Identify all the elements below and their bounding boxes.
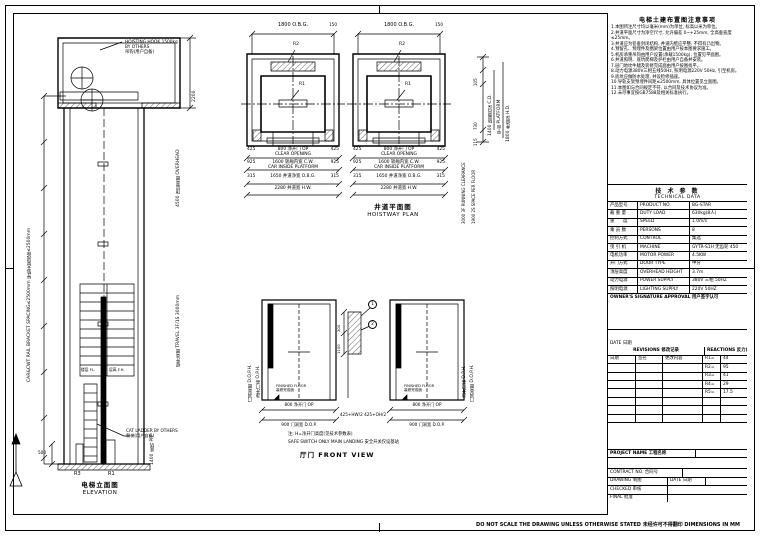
door-opening-height-label-right: 门洞高度 D.O.P.H. — [470, 310, 476, 402]
title-block: PROJECT NAME 工程名称 CONTRACT NO. 合同号 DRAWI… — [608, 450, 747, 515]
reaction-value: 95 — [721, 364, 747, 371]
op-row-cn: 800 净开门 OP — [284, 402, 313, 407]
tech-row: 照明电源LIGHTING SUPPLY220V 50HZ — [608, 286, 747, 294]
dim-425-left: 425 — [247, 148, 255, 153]
hook-note-line3: 吊钩(用户自备) — [125, 50, 154, 55]
revision-row: 日期 签名 更改内容 R1= 44 — [608, 356, 747, 364]
dim-425-right: 425 — [437, 148, 445, 153]
elevation-caption: 电梯立面图 ELEVATION — [48, 482, 152, 496]
contract-no-label: CONTRACT NO. 合同号 — [608, 469, 683, 476]
checked-row: CHECKED 审核 — [608, 486, 747, 494]
tech-row: 载 重 量DUTY LOAD630kg(8人) — [608, 210, 747, 218]
running-clearance-note: 3000 3F RUNNING CLEARANCE — [461, 142, 466, 224]
cad-drawing-page: DO NOT SCALE THE DRAWING UNLESS OTHERWIS… — [0, 0, 760, 537]
note-item: 8.动力电源380V三相五线50Hz, 照明电源220V 50Hz, 引至机房。 — [608, 69, 747, 75]
notes-section: 电梯土建布置图注意事项 1.本图所注尺寸均以毫米(mm)为单位, 标高以米为单位… — [608, 13, 747, 185]
tech-en: MACHINE — [638, 244, 690, 251]
hoisting-hook-note: HOISTING HOOK 1500kg BY OTHERS 吊钩(用户自备) — [125, 40, 211, 55]
revision-row — [608, 398, 747, 406]
obg-width-dim-shaft2: 315 1650 井道净宽 O.B.G. 315 — [353, 175, 445, 180]
r1-label-shaft1: R1 — [299, 82, 305, 87]
tech-val: 集选 — [690, 236, 747, 243]
final-row: FINAL 批准 — [608, 495, 747, 502]
tech-row: 产品型号PRODUCT NO.BG-STAR — [608, 202, 747, 210]
revision-row: R2= 95 — [608, 364, 747, 372]
note-item: 12.未尽事宜按GB7588及相关标准执行。 — [608, 91, 747, 97]
section-arrow-icon — [6, 432, 26, 488]
technical-data-section: 技 术 参 数 TECHNICAL DATA 产品型号PRODUCT NO.BG… — [608, 185, 747, 330]
tech-val: 3.7m — [690, 269, 747, 276]
obg-dim-shaft2: 1800 O.B.G. — [359, 22, 439, 28]
project-name-label: PROJECT NAME 工程名称 — [608, 450, 696, 457]
revision-row — [608, 415, 747, 423]
cw-dim-en: CAR INSIDE PLATFORM — [268, 166, 318, 171]
chain-dim-730: 730 — [473, 88, 478, 130]
machine-room-height-dim: 2200 — [192, 52, 197, 102]
op-row-cn: 800 净开门 OP — [412, 402, 441, 407]
reaction-value: 29 — [721, 381, 747, 388]
revision-row: R3= 41 — [608, 373, 747, 381]
reaction-key: R2= — [703, 364, 721, 371]
owner-signature-row: OWNER'S SIGNATURE APPROVAL 用户签字认可 — [608, 294, 747, 301]
tech-row: 电机功率MOTOR POWER4.5KW — [608, 252, 747, 260]
tech-val: BG-STAR — [690, 202, 747, 209]
front-view-note1: 注: H=净开门高度(见技术参数表) — [288, 432, 353, 437]
op-dim-en: CLEAR OPENING — [381, 153, 417, 158]
note-item: 2.井道平面尺寸为净空尺寸, 允许偏差 0~+25mm, 全高垂直度≤25mm。 — [608, 31, 747, 42]
tech-row: 曳 引 机MACHINEGYTR-S1H 无齿轮 450 — [608, 244, 747, 252]
dim-315-right: 315 — [331, 175, 339, 180]
tech-en: PERSONS — [638, 227, 690, 234]
op-dim-right-door: 800 净开门 OP — [390, 402, 464, 407]
tech-row: 顶层高度OVERHEAD HEIGHT3.7m — [608, 269, 747, 277]
plan-caption-en: HOISTWAY PLAN — [367, 212, 418, 218]
reaction-r3-label: R3 — [74, 471, 81, 477]
space-per-floor-note: 1900 2S SPACE PER FLOOR — [471, 142, 476, 224]
callout-1: 1 — [368, 300, 377, 309]
clear-opening-dim-shaft1: 425 800 净开门 OPCLEAR OPENING 425 — [247, 148, 339, 158]
platform-label: 平台 PLATFORM — [497, 68, 503, 134]
front-view: 门洞高度 D.O.P.H. 净开门高 O.P.H. 门洞高度 D.O.P.H. … — [248, 288, 478, 473]
border-center-tick-left — [5, 268, 14, 269]
col-changed: 更改内容 — [663, 356, 703, 363]
dim-315-right: 315 — [437, 175, 445, 180]
do-not-scale-note: DO NOT SCALE THE DRAWING UNLESS OTHERWIS… — [476, 522, 740, 528]
clear-opening-dim-shaft2: 425 800 净开门 OPCLEAR OPENING 425 — [353, 148, 445, 158]
date-label: DATE 日期 — [668, 478, 706, 485]
revision-row: R4= 29 — [608, 381, 747, 389]
reaction-value: 44 — [721, 356, 747, 363]
finished-floor-note-right: FINISHED FLOOR 装修完成面 — [404, 384, 448, 393]
notes-title: 电梯土建布置图注意事项 — [608, 13, 747, 25]
date-label: DATE 日期 — [608, 340, 747, 347]
schedule-col-floor: 楼层 FL. — [81, 368, 95, 373]
tech-cn: 动力电源 — [608, 278, 638, 285]
tech-en: LIGHTING SUPPLY — [638, 286, 690, 293]
schedule-col-height: 层高 F.H. — [109, 368, 125, 373]
callout-2: 2 — [368, 320, 377, 329]
reaction-key: R1= — [703, 356, 721, 363]
dim-315-left: 315 — [353, 175, 361, 180]
detail-dim-1100: 1100 — [336, 334, 341, 354]
reaction-r1-label: R1 — [108, 471, 115, 477]
car-depth-label: 1400 轿厢内深 C.D. — [488, 64, 494, 136]
hw-dim-shaft1: 2280 井道宽 H.W. — [247, 186, 339, 191]
reaction-key: R3= — [703, 373, 721, 380]
tech-val: 8 — [690, 227, 747, 234]
hoistway-plan-view: 1800 O.B.G. 150 1800 O.B.G. 150 R2 R1 R2… — [233, 12, 528, 227]
r1-label-shaft2: R1 — [405, 82, 411, 87]
ff-line2: 装修完成面 — [276, 388, 294, 392]
front-view-note2: SAFE SWITCH ONLY MAIN LANDING 安全开关仅设基站 — [288, 440, 399, 445]
tech-val: 1.0m/s — [690, 219, 747, 226]
tech-row: 动力电源POWER SUPPLY380V 三相 50HZ — [608, 278, 747, 286]
obg-width-dim-shaft1: 315 1650 井道净宽 O.B.G. 315 — [247, 175, 339, 180]
car-width-dim-shaft1: 925 1600 轿厢内宽 C.W.CAR INSIDE PLATFORM 92… — [247, 161, 339, 171]
overhead-label: 4500 顶层高度 OVERHEAD — [176, 112, 182, 207]
tech-val: GYTR-S1H 无齿轮 450 — [690, 244, 747, 251]
dim-150-shaft1: 150 — [329, 22, 337, 27]
hw-dim-shaft2: 2280 井道宽 H.W. — [353, 186, 445, 191]
tech-val: 220V 50HZ — [690, 286, 747, 293]
dim-925-right: 925 — [437, 161, 445, 166]
checked-label: CHECKED 审核 — [608, 486, 668, 493]
hoistway-plan-linework — [233, 12, 528, 227]
revision-section: DATE 日期 REVISIONS 修改记录 REACTIONS 反力(KN) … — [608, 330, 747, 450]
bracket-spacing-label: CAR&CWT RAIL BRACKET SPACING≤2500mm 导轨支架… — [27, 122, 33, 382]
hoistway-depth-label: 1800 井道深 H.D. — [506, 58, 512, 142]
tech-cn: 照明电源 — [608, 286, 638, 293]
clear-height-label-left: 净开门高 O.P.H. — [256, 314, 262, 398]
front-view-linework — [248, 288, 478, 473]
finished-floor-note-left: FINISHED FLOOR 装修完成面 — [276, 384, 320, 393]
elevation-caption-en: ELEVATION — [83, 490, 118, 496]
tech-en: MOTOR POWER — [638, 252, 690, 259]
project-row: PROJECT NAME 工程名称 — [608, 450, 747, 458]
plan-caption-cn: 井道平面图 — [374, 203, 412, 211]
obg-row-label: 1650 井道净宽 O.B.G. — [376, 175, 421, 180]
elevation-view: CAR&CWT RAIL BRACKET SPACING≤2500mm 导轨支架… — [30, 12, 220, 512]
op-dim-left-door: 800 净开门 OP — [262, 402, 336, 407]
contract-row: CONTRACT NO. 合同号 — [608, 469, 747, 477]
tech-en: DOOR TYPE — [638, 261, 690, 268]
tech-cn: 电机功率 — [608, 252, 638, 259]
revision-row: R5= 17.5 — [608, 389, 747, 397]
tech-title-cn: 技 术 参 数 — [608, 185, 747, 195]
col-name: 签名 — [636, 356, 663, 363]
r2-label-shaft2: R2 — [399, 42, 405, 47]
dim-150-shaft2: 150 — [435, 22, 443, 27]
tech-cn: 控制方式 — [608, 236, 638, 243]
tech-cn: 速 度 — [608, 219, 638, 226]
dim-925-left: 925 — [353, 161, 361, 166]
chain-dim-105: 105 — [473, 58, 478, 86]
border-center-tick-right — [746, 268, 755, 269]
r2-label-shaft1: R2 — [293, 42, 299, 47]
reaction-value: 17.5 — [721, 389, 747, 396]
ff-line2: 装修完成面 — [404, 388, 422, 392]
car-width-dim-shaft2: 925 1600 轿厢内宽 C.W.CAR INSIDE PLATFORM 92… — [353, 161, 445, 171]
tech-title-en: TECHNICAL DATA — [608, 195, 747, 202]
reaction-value: 41 — [721, 373, 747, 380]
reaction-key: R5= — [703, 389, 721, 396]
cw-dim-en: CAR INSIDE PLATFORM — [374, 166, 424, 171]
tech-en: CONTROL — [638, 236, 690, 243]
pit-depth-label: 1400 底坑 PIT — [150, 417, 156, 465]
dim-500: 500 — [38, 450, 46, 455]
dim-925-right: 925 — [331, 161, 339, 166]
tech-val: 4.5KW — [690, 252, 747, 259]
tech-cn: 曳 引 机 — [608, 244, 638, 251]
col-date: 日期 — [608, 356, 636, 363]
right-panel: 电梯土建布置图注意事项 1.本图所注尺寸均以毫米(mm)为单位, 标高以米为单位… — [607, 13, 747, 515]
dim-425-right: 425 — [331, 148, 339, 153]
hoistway-plan-caption: 井道平面图 HOISTWAY PLAN — [338, 204, 448, 218]
tech-cn: 产品型号 — [608, 202, 638, 209]
dw-dim-left-door: 900 门洞宽 D.O.P. — [262, 422, 336, 427]
revision-row — [608, 406, 747, 414]
tech-val: 380V 三相 50HZ — [690, 278, 747, 285]
tech-en: PRODUCT NO. — [638, 202, 690, 209]
tech-cn: 乘 员 数 — [608, 227, 638, 234]
revisions-header: REVISIONS 修改记录 — [608, 347, 705, 354]
dw-dim-right-door: 900 门洞宽 D.O.P. — [390, 422, 464, 427]
obg-dim-shaft1: 1800 O.B.G. — [253, 22, 333, 28]
op-dim-en: CLEAR OPENING — [275, 153, 311, 158]
cat-ladder-note: CAT LADDER BY OTHERS 爬梯(用户自备) — [126, 428, 214, 438]
tech-row: 控制方式CONTROL集选 — [608, 236, 747, 244]
tech-cn: 载 重 量 — [608, 210, 638, 217]
final-label: FINAL 批准 — [608, 495, 668, 502]
tech-en: DUTY LOAD — [638, 210, 690, 217]
spacer-row — [608, 458, 747, 469]
obg-row-label: 1650 井道净宽 O.B.G. — [270, 175, 315, 180]
revision-header-row: REVISIONS 修改记录 REACTIONS 反力(KN) — [608, 347, 747, 355]
tech-cn: 开门方式 — [608, 261, 638, 268]
elevation-caption-cn: 电梯立面图 — [81, 481, 119, 489]
tech-val: 630kg(8人) — [690, 210, 747, 217]
tech-val: 中分 — [690, 261, 747, 268]
front-view-caption: 厅门 FRONT VIEW — [300, 452, 374, 460]
dim-425-left: 425 — [353, 148, 361, 153]
door-opening-height-label-left: 门洞高度 D.O.P.H. — [248, 310, 254, 402]
travel-label: 提升高度 TRAVEL 3F/1S 3000mm — [176, 247, 182, 367]
drawing-row: DRAWING 制图 DATE 日期 — [608, 478, 747, 486]
tech-row: 开门方式DOOR TYPE中分 — [608, 261, 747, 269]
clear-height-label-right: 净开门高 O.P.H. — [462, 314, 468, 398]
detail-dim-300: 300 — [336, 314, 341, 332]
center-dim-text: 425+HW/2 425+OH/2 — [318, 412, 408, 417]
dim-925-left: 925 — [247, 161, 255, 166]
tech-en: POWER SUPPLY — [638, 278, 690, 285]
dim-315-left: 315 — [247, 175, 255, 180]
tech-en: OVERHEAD HEIGHT — [638, 269, 690, 276]
tech-cn: 顶层高度 — [608, 269, 638, 276]
reactions-header: REACTIONS 反力(KN) — [705, 347, 747, 354]
tech-row: 乘 员 数PERSONS8 — [608, 227, 747, 235]
tech-en: SPEED — [638, 219, 690, 226]
drawing-label: DRAWING 制图 — [608, 478, 668, 485]
tech-row: 速 度SPEED1.0m/s — [608, 219, 747, 227]
border-center-tick-bottom — [379, 523, 380, 532]
reaction-key: R4= — [703, 381, 721, 388]
